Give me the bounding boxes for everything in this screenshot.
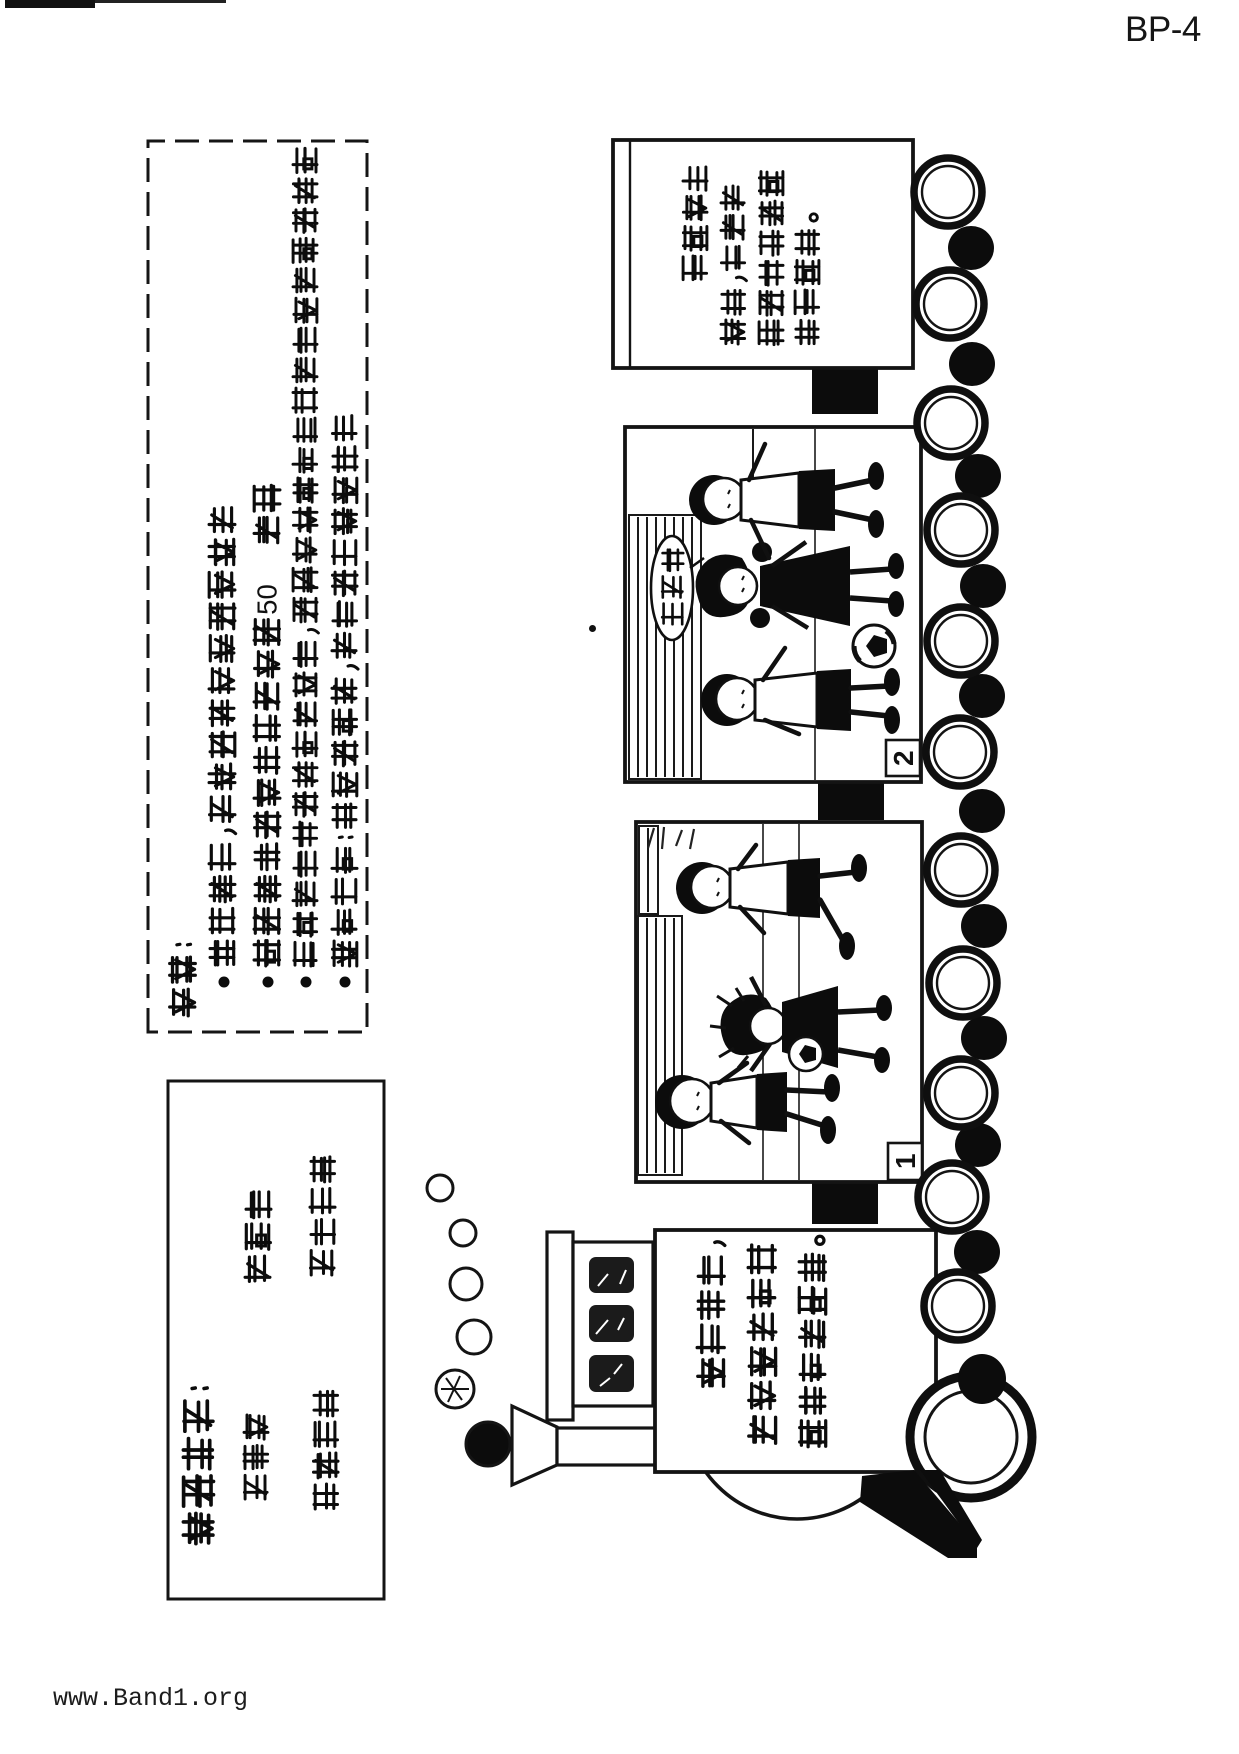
- svg-text:1: 1: [890, 1153, 921, 1169]
- svg-text:50: 50: [252, 584, 283, 615]
- svg-text:2: 2: [888, 750, 919, 766]
